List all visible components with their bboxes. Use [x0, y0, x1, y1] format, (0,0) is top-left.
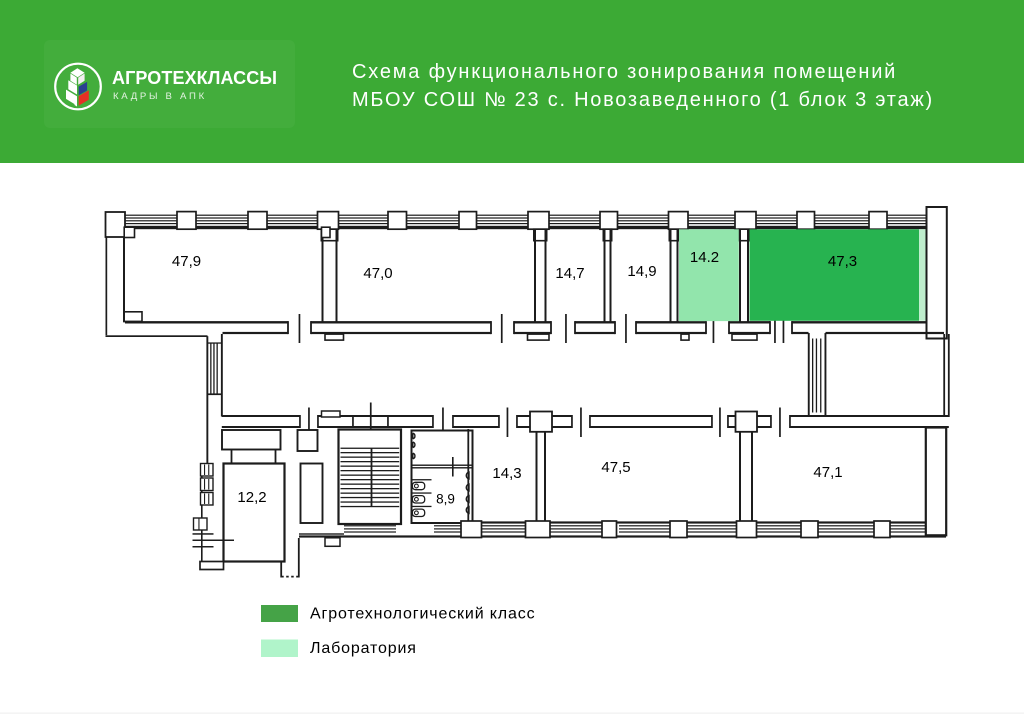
svg-text:47,3: 47,3	[828, 253, 857, 270]
svg-text:Лаборатория: Лаборатория	[310, 640, 417, 657]
svg-text:14,7: 14,7	[555, 265, 584, 282]
svg-text:47,0: 47,0	[363, 265, 392, 282]
svg-text:47,1: 47,1	[813, 464, 842, 481]
svg-text:МБОУ СОШ № 23 с. Новозаведенно: МБОУ СОШ № 23 с. Новозаведенного (1 блок…	[352, 89, 934, 111]
svg-text:47,5: 47,5	[601, 459, 630, 476]
svg-text:8,9: 8,9	[436, 492, 455, 507]
svg-text:Агротехнологический класс: Агротехнологический класс	[310, 606, 535, 623]
svg-text:47,9: 47,9	[172, 253, 201, 270]
svg-text:КАДРЫ В АПК: КАДРЫ В АПК	[113, 91, 207, 102]
svg-text:12,2: 12,2	[237, 489, 266, 506]
svg-text:Схема функционального зонирова: Схема функционального зонирования помеще…	[352, 61, 897, 83]
svg-text:АГРОТЕХКЛАССЫ: АГРОТЕХКЛАССЫ	[112, 68, 277, 88]
svg-text:14.2: 14.2	[690, 249, 719, 266]
svg-text:14,3: 14,3	[492, 465, 521, 482]
svg-text:14,9: 14,9	[627, 263, 656, 280]
